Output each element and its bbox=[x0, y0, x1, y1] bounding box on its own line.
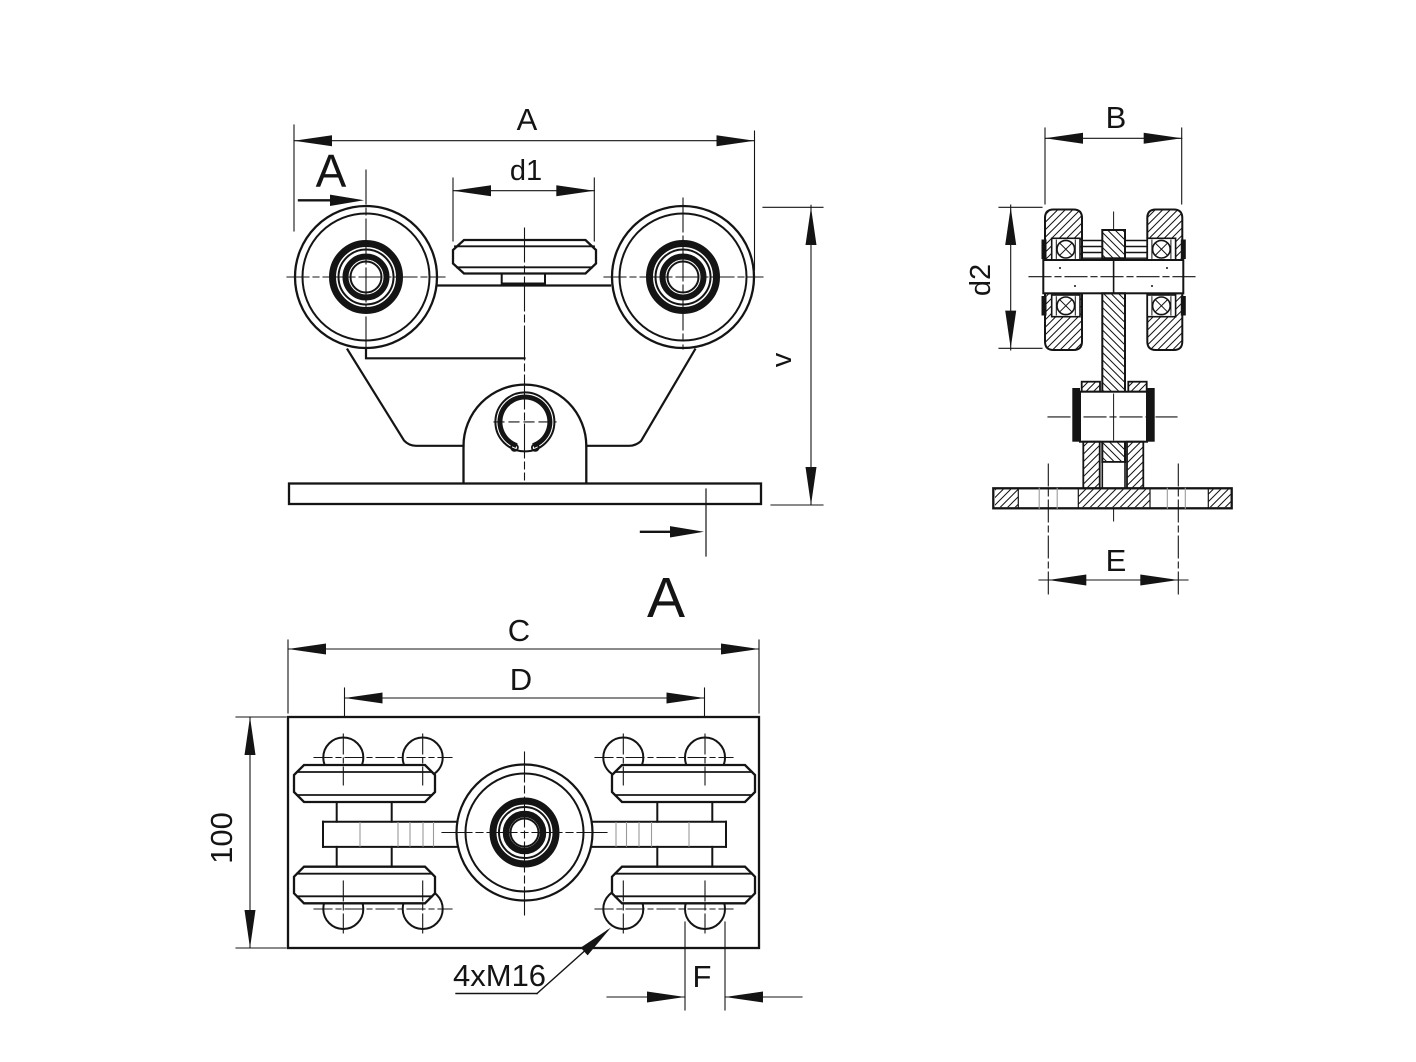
arrowhead-icon bbox=[721, 644, 759, 655]
dimension-plate-width bbox=[236, 717, 286, 948]
dimension-pad-width bbox=[453, 178, 594, 241]
dim-label-100: 100 bbox=[204, 812, 239, 864]
left-slope-edge bbox=[348, 350, 464, 446]
section-label-bottom: A bbox=[647, 566, 685, 630]
right-slope-edge bbox=[587, 350, 696, 446]
bearing-seal bbox=[1042, 240, 1047, 260]
dimension-wheel-diameter bbox=[999, 205, 1042, 350]
dim-label-C: C bbox=[508, 613, 530, 648]
wheel-hub-band bbox=[1029, 260, 1198, 293]
arrowhead-icon bbox=[806, 207, 817, 245]
section-label-top: A bbox=[316, 145, 347, 197]
thread-callout-label: 4xM16 bbox=[453, 958, 546, 993]
arrowhead-icon bbox=[647, 992, 685, 1003]
arrowhead-icon bbox=[725, 992, 763, 1003]
arrowhead-icon bbox=[453, 185, 491, 196]
bracket-leg-section bbox=[1127, 442, 1143, 489]
wheel-top-view bbox=[294, 765, 435, 802]
body-step-edge bbox=[366, 349, 525, 358]
wheel-top-view bbox=[294, 867, 435, 904]
technical-drawing-canvas: A d1 A v bbox=[0, 0, 1416, 1062]
arrowhead-icon bbox=[245, 717, 256, 755]
bracket-leg-section bbox=[1083, 442, 1099, 489]
nut-flange bbox=[1128, 382, 1146, 392]
bearing-seal bbox=[1181, 240, 1186, 260]
side-section-view: B d2 bbox=[965, 100, 1232, 597]
arrowhead-icon bbox=[806, 467, 817, 505]
arrowhead-icon bbox=[1005, 311, 1016, 349]
washer-section bbox=[1072, 388, 1080, 442]
bearing-section bbox=[1052, 238, 1080, 260]
bearing-section bbox=[1147, 295, 1175, 317]
dim-label-B: B bbox=[1106, 100, 1127, 135]
arrowhead-icon bbox=[345, 693, 383, 704]
dim-label-d1: d1 bbox=[510, 155, 542, 187]
bearing-seal bbox=[1181, 296, 1186, 316]
arrowhead-icon bbox=[1144, 133, 1182, 144]
dim-label-F: F bbox=[693, 959, 712, 994]
arrowhead-icon bbox=[667, 693, 705, 704]
dimension-width-B bbox=[1045, 128, 1182, 204]
plan-view: C D 100 bbox=[204, 613, 802, 1010]
front-view: A d1 A v bbox=[287, 102, 823, 630]
arrowhead-icon bbox=[556, 185, 594, 196]
arrowhead-icon bbox=[717, 135, 755, 146]
left-wheel bbox=[287, 170, 445, 349]
arrowhead-icon bbox=[288, 644, 326, 655]
bearing-section bbox=[1147, 238, 1175, 260]
dim-label-d2: d2 bbox=[965, 264, 997, 296]
bearing-section bbox=[1052, 295, 1080, 317]
arrowhead-icon bbox=[1045, 133, 1083, 144]
shaft-top-section bbox=[1102, 230, 1125, 258]
wheel-top-view bbox=[612, 867, 755, 904]
section-arrow-icon bbox=[670, 526, 704, 537]
arrowhead-icon bbox=[245, 910, 256, 948]
bearing-seal bbox=[1042, 296, 1047, 316]
right-wheel bbox=[604, 198, 763, 349]
drawing-sheet: A d1 A v bbox=[0, 0, 1416, 1062]
dim-label-A: A bbox=[517, 102, 538, 137]
base-plate-front bbox=[289, 484, 761, 505]
arrowhead-icon bbox=[1048, 575, 1086, 586]
nut-flange bbox=[1082, 382, 1100, 392]
bracket-slot bbox=[1102, 462, 1125, 488]
dim-label-v: v bbox=[766, 352, 798, 367]
arrowhead-icon bbox=[1140, 575, 1178, 586]
washer-section bbox=[1147, 388, 1155, 442]
wheel-top-view bbox=[612, 765, 755, 802]
dim-label-E: E bbox=[1106, 543, 1127, 578]
dim-label-D: D bbox=[510, 662, 532, 697]
arrowhead-icon bbox=[1005, 207, 1016, 245]
